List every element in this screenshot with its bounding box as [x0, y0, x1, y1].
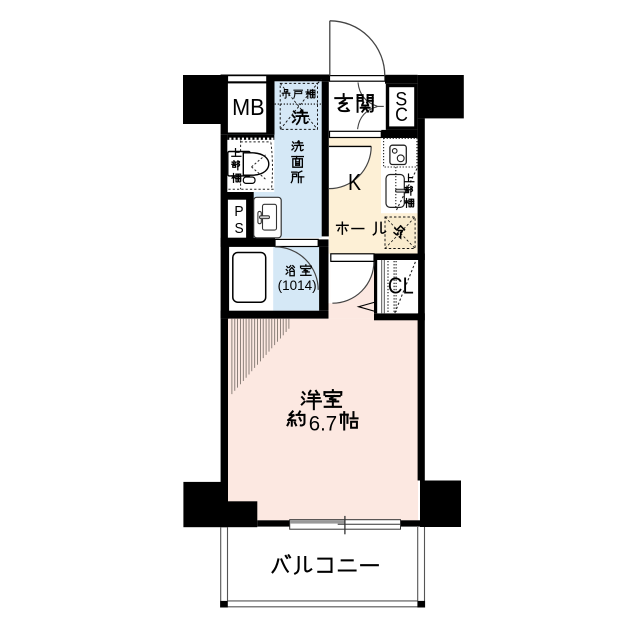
svg-text:(1014): (1014)	[278, 278, 317, 293]
svg-text:K: K	[348, 170, 361, 196]
svg-text:MB: MB	[232, 94, 264, 120]
svg-text:S: S	[235, 220, 244, 236]
svg-text:C: C	[395, 103, 408, 125]
svg-text:P: P	[234, 203, 243, 219]
svg-text:CL: CL	[388, 272, 414, 299]
svg-text:6.7: 6.7	[309, 412, 337, 436]
